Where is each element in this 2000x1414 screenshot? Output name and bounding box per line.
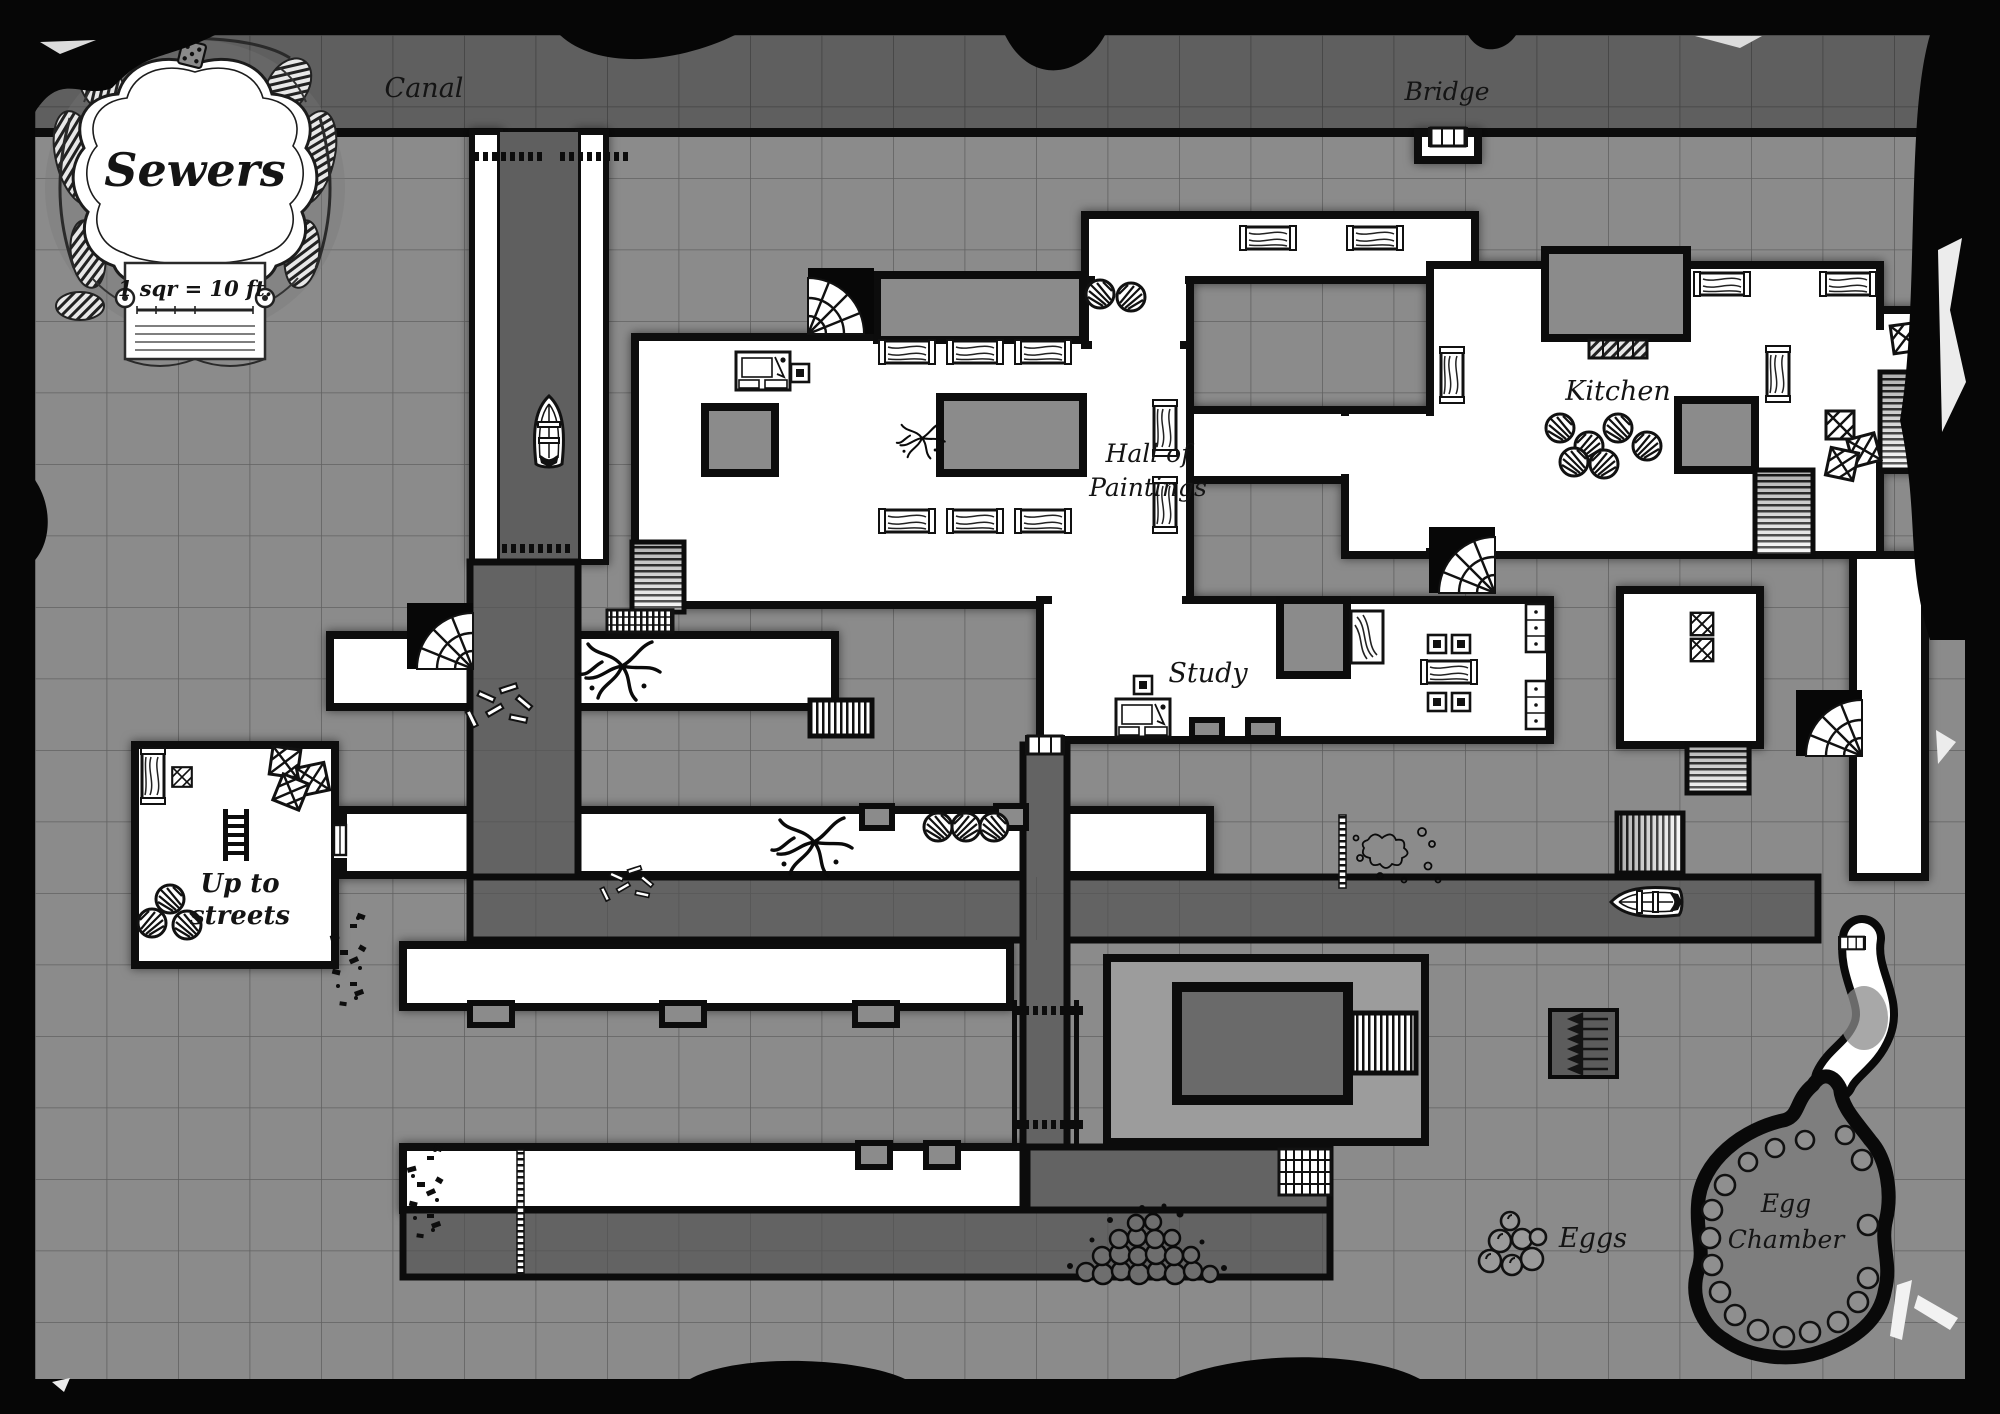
cabinet-icon <box>1526 604 1546 652</box>
crate-icon <box>1691 639 1713 661</box>
table-icon <box>1820 272 1876 296</box>
desk-icon <box>1116 699 1170 737</box>
label-egg-chamber-2: Chamber <box>1728 1225 1847 1254</box>
mid-corridor-upper <box>330 635 835 707</box>
chair-icon <box>1428 693 1446 711</box>
bridge-icon <box>1025 735 1065 755</box>
label-hall-of-paintings-2: Paintings <box>1088 473 1207 502</box>
scale-note: 1 sqr = 10 ft. <box>118 276 272 301</box>
barrel-icon <box>1086 280 1114 308</box>
crate-icon <box>172 767 192 787</box>
grate-icon <box>607 610 673 632</box>
table-icon <box>1347 226 1403 250</box>
stairs-icon <box>810 700 872 736</box>
stairs-icon <box>1352 1013 1416 1073</box>
canal-ledge-west <box>472 132 500 562</box>
label-bridge: Bridge <box>1403 77 1489 106</box>
painting-icon <box>1015 509 1071 533</box>
weir-arrows-icon <box>1550 1010 1617 1077</box>
hall-north-block <box>877 275 1083 340</box>
bed-icon <box>1351 611 1383 663</box>
fan-stairs-icon <box>407 603 473 669</box>
ladder-icon <box>223 809 249 861</box>
crate-icon <box>1691 613 1713 635</box>
barrel-icon <box>1590 450 1618 478</box>
scale-plaque: 1 sqr = 10 ft. <box>116 263 274 366</box>
fan-stairs-icon <box>1429 527 1495 593</box>
painting-icon <box>947 509 1003 533</box>
chair-icon <box>791 364 809 382</box>
stove-icon <box>1589 340 1647 358</box>
table-icon <box>1766 346 1790 402</box>
zipper-wall-icon <box>1339 815 1346 888</box>
west-canal-channel <box>500 132 578 562</box>
bridge-icon <box>1428 127 1468 147</box>
chair-icon <box>1452 635 1470 653</box>
barrel-icon <box>980 813 1008 841</box>
desk-icon <box>736 352 790 390</box>
chair-icon <box>1428 635 1446 653</box>
hall-center-block <box>940 397 1083 473</box>
barrel-icon <box>952 813 980 841</box>
label-egg-chamber-1: Egg <box>1760 1189 1811 1218</box>
painting-icon <box>879 340 935 364</box>
kitchen-north-block <box>1545 250 1687 338</box>
table-icon <box>1421 660 1477 684</box>
label-hall-of-paintings-1: Hall of <box>1105 439 1195 468</box>
barrel-icon <box>138 909 166 937</box>
central-channel <box>1023 745 1067 1207</box>
chair-icon <box>1134 676 1152 694</box>
kitchen-center-block <box>1678 400 1755 470</box>
barrel-icon <box>1546 414 1574 442</box>
cabinet-icon <box>1526 681 1546 729</box>
east-walkway <box>1853 555 1925 877</box>
fan-stairs-icon <box>1796 690 1862 756</box>
stairs-icon <box>1617 813 1683 873</box>
table-icon <box>1440 347 1464 403</box>
stairs-icon <box>1687 745 1749 793</box>
label-eggs: Eggs <box>1558 1223 1627 1254</box>
hall-west-block <box>705 407 775 473</box>
barrel-icon <box>1604 414 1632 442</box>
sewers-dungeon-map: Canal Bridge Kitchen Hall of Paintings S… <box>0 0 2000 1414</box>
chair-icon <box>1452 693 1470 711</box>
canal-ledge-east <box>578 132 606 562</box>
label-study: Study <box>1168 658 1248 689</box>
crate-icon <box>1825 447 1858 480</box>
barrel-icon <box>924 813 952 841</box>
central-platform <box>1107 958 1425 1142</box>
label-kitchen: Kitchen <box>1564 376 1671 407</box>
table-icon <box>141 748 165 804</box>
kitchen-south-link <box>1345 410 1430 555</box>
study-pillar <box>1280 600 1347 675</box>
door-icon <box>334 825 346 855</box>
portcullis-icon <box>1279 1149 1331 1195</box>
southwest-corridor <box>403 945 1010 1007</box>
stairs-icon <box>632 542 684 612</box>
barrel-icon <box>156 885 184 913</box>
map-title: Sewers <box>104 143 285 197</box>
label-up-to-streets-1: Up to <box>200 869 279 899</box>
barrel-icon <box>1117 283 1145 311</box>
barrel-icon <box>1560 448 1588 476</box>
pool-room <box>1177 987 1348 1100</box>
table-icon <box>1694 272 1750 296</box>
painting-icon <box>1015 340 1071 364</box>
painting-icon <box>879 509 935 533</box>
crate-icon <box>1826 411 1854 439</box>
fan-stairs-icon <box>808 268 874 334</box>
barrel-icon <box>1633 432 1661 460</box>
table-icon <box>1240 226 1296 250</box>
stairs-icon <box>1755 470 1813 556</box>
label-up-to-streets-2: streets <box>189 901 290 931</box>
painting-icon <box>947 340 1003 364</box>
zipper-wall-icon <box>517 1150 524 1274</box>
label-canal: Canal <box>385 73 464 104</box>
bridge-icon <box>1838 936 1866 950</box>
